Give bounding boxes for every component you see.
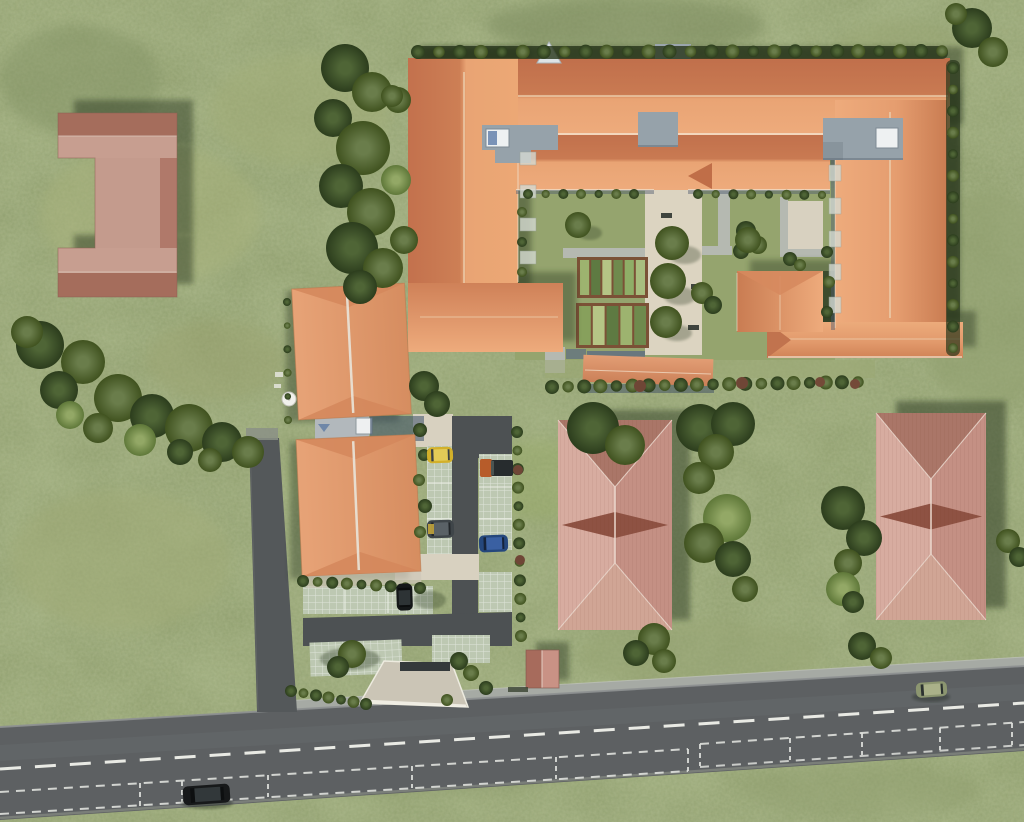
tree: [652, 649, 676, 673]
terrace-furniture: [274, 384, 281, 388]
hedge-villa-west: [283, 345, 291, 353]
planter-row: [636, 260, 645, 295]
hedge-villa-west: [284, 416, 292, 424]
hedge-east: [947, 62, 959, 74]
hedge-apron-west: [310, 689, 322, 701]
hedge-south: [674, 378, 688, 392]
hedge-villa-south: [385, 580, 397, 592]
hedge-east: [947, 299, 959, 311]
tree: [870, 647, 892, 669]
courtyard-shrubs: [542, 190, 550, 198]
courtyard-shrubs: [693, 189, 703, 199]
hedge-north: [663, 45, 677, 59]
hedge-south: [707, 379, 718, 390]
fence: [508, 687, 528, 692]
hedge-south: [577, 379, 591, 393]
tree: [414, 526, 426, 538]
hedge-apron-west: [299, 688, 309, 698]
terrace-furniture: [275, 372, 283, 377]
hedge-north: [725, 44, 739, 58]
truck-cab: [480, 459, 492, 477]
car-on-road-olive: [916, 681, 948, 698]
flowering-shrub: [634, 380, 646, 392]
building-west-spine-dark: [160, 158, 177, 248]
car-hood: [428, 524, 434, 534]
hedge-apron-west: [323, 692, 335, 704]
balcony: [520, 218, 536, 231]
hedge-east: [948, 214, 958, 224]
car-rear-window: [502, 537, 504, 549]
tree: [821, 246, 833, 258]
flowering-shrub: [736, 377, 748, 389]
building-west-roof-light: [58, 136, 177, 158]
hedge-apron-west: [285, 685, 297, 697]
courtyard-tree: [655, 226, 689, 260]
hedge-south: [659, 379, 670, 390]
car-rear-window: [399, 605, 410, 607]
hedge-north: [811, 46, 822, 57]
tree: [517, 237, 527, 247]
flowering-shrub: [850, 379, 860, 389]
tree: [517, 207, 527, 217]
tree: [732, 576, 758, 602]
hedge-villa-west: [284, 322, 291, 329]
car-roof: [485, 537, 503, 550]
hedge-south: [804, 377, 815, 388]
hedge-north: [914, 44, 928, 58]
grass-patch: [145, 320, 285, 400]
hedge-north: [579, 45, 593, 59]
hedge-south: [835, 375, 849, 389]
hedge-villa-south: [370, 579, 382, 591]
hedge-parking-east: [511, 426, 523, 438]
tree: [418, 499, 432, 513]
hedge-north: [851, 44, 865, 58]
shed-roof-dark: [526, 650, 542, 688]
hedge-south: [611, 380, 622, 391]
hedge-north: [411, 45, 425, 59]
courtyard-tree: [565, 212, 591, 238]
hedge-south: [690, 378, 704, 392]
tree: [450, 652, 468, 670]
hedge-east: [948, 343, 958, 353]
tree: [842, 591, 864, 613]
hedge-north: [767, 44, 781, 58]
hedge-parking-east: [513, 537, 525, 549]
zinc-roof: [638, 112, 678, 147]
car-roof: [192, 787, 222, 803]
hedge-villa-south: [326, 577, 338, 589]
car-windshield: [483, 537, 486, 550]
tree: [83, 413, 113, 443]
car-yellow: [427, 447, 454, 464]
hedge-east: [947, 105, 959, 117]
courtyard-shrubs: [746, 189, 756, 199]
paver-stalls: [479, 572, 512, 612]
grass-patch: [740, 765, 980, 815]
hedge-north: [474, 45, 488, 59]
car-windshield: [398, 588, 410, 591]
tree: [945, 3, 967, 25]
planter-row: [602, 260, 611, 295]
hedge-villa-west: [283, 298, 291, 306]
courtyard-tree: [650, 263, 686, 299]
tree: [56, 401, 84, 429]
hedge-north: [433, 46, 444, 57]
tree: [441, 694, 453, 706]
planter-row: [620, 306, 632, 345]
tree: [517, 267, 527, 277]
tree: [381, 165, 411, 195]
hedge-parking-east: [514, 574, 526, 586]
site-plan-aerial-view: Aerial site plan rendering of residentia…: [0, 0, 1024, 822]
skylight: [356, 418, 372, 434]
hedge-north: [600, 45, 614, 59]
car-roof: [432, 522, 449, 536]
hedge-villa-west: [284, 369, 292, 377]
concrete-path: [718, 190, 730, 248]
shed-roof-light: [542, 650, 559, 688]
planter-row: [614, 260, 623, 295]
hedge-north: [516, 45, 530, 59]
courtyard-tree: [735, 227, 761, 253]
hedge-south: [545, 380, 559, 394]
hedge-north: [642, 45, 656, 59]
tree: [715, 541, 751, 577]
courtyard-shrubs: [611, 189, 621, 199]
hedge-north: [830, 44, 844, 58]
hedge-north: [453, 45, 467, 59]
courtyard-tree: [650, 306, 682, 338]
hedge-base: [412, 46, 948, 59]
hedge-east: [947, 170, 959, 182]
planter-row: [593, 306, 605, 345]
parking-aisle: [452, 458, 478, 614]
planter-box: [566, 349, 586, 359]
planter-row: [580, 260, 589, 295]
parking-asphalt: [452, 416, 512, 458]
balcony: [520, 251, 536, 264]
flowering-shrub: [815, 377, 825, 387]
tree: [390, 226, 418, 254]
hedge-villa-south: [341, 578, 353, 590]
tree: [11, 316, 43, 348]
hedge-north: [704, 44, 718, 58]
tree: [623, 640, 649, 666]
hedge-parking-east: [514, 501, 524, 511]
hedge-north: [873, 45, 884, 56]
tree: [479, 681, 493, 695]
tree: [683, 462, 715, 494]
courtyard-shrubs: [728, 189, 738, 199]
bench: [661, 213, 672, 218]
car-windshield: [431, 449, 434, 461]
building-west-roof-dark: [58, 273, 177, 297]
tile-texture: [876, 413, 986, 620]
tree: [605, 425, 645, 465]
hedge-parking-east: [515, 630, 527, 642]
tree: [704, 296, 722, 314]
car-blue: [479, 534, 509, 552]
hedge-south: [562, 381, 573, 392]
hedge-parking-east: [513, 519, 525, 531]
planter-row: [625, 260, 634, 295]
hedge-villa-south: [414, 582, 426, 594]
hedge-east: [947, 320, 959, 332]
hedge-base: [946, 60, 960, 356]
hedge-villa-west: [285, 393, 292, 400]
courtyard-shrubs: [558, 189, 568, 199]
patio: [787, 201, 823, 252]
hedge-parking-east: [514, 593, 526, 605]
hedge-north: [559, 46, 570, 57]
planter-row: [607, 306, 619, 345]
hedge-south: [756, 378, 767, 389]
courtyard-shrubs: [629, 189, 639, 199]
courtyard-shrubs: [523, 189, 533, 199]
hedge-apron-west: [360, 698, 372, 710]
courtyard-shrubs: [799, 190, 809, 200]
car-rear-window: [448, 449, 450, 460]
car-black-parked: [396, 583, 413, 611]
flowering-shrub: [513, 465, 523, 475]
tree: [124, 424, 156, 456]
hedge-apron-west: [348, 696, 360, 708]
tree: [167, 439, 193, 465]
balcony: [829, 198, 841, 214]
skylight-frame: [488, 131, 497, 145]
tree: [413, 474, 425, 486]
hedge-north: [788, 44, 802, 58]
site-plan-canvas: [0, 0, 1024, 822]
skylight: [876, 128, 898, 148]
building-west-roof-light: [58, 248, 177, 273]
hedge-north: [936, 45, 947, 56]
hedge-east: [947, 191, 959, 203]
hedge-parking-east: [512, 482, 524, 494]
courtyard-shrubs: [818, 191, 826, 199]
car-roof: [432, 449, 449, 461]
hedge-parking-east: [516, 613, 526, 623]
hedge-east: [947, 234, 959, 246]
hedge-north: [685, 46, 696, 57]
planter-row: [591, 260, 600, 295]
hedge-apron-west: [336, 695, 346, 705]
hedge-east: [947, 127, 959, 139]
courtyard-shrubs: [576, 189, 586, 199]
truck-cargo: [491, 460, 513, 476]
tree: [413, 423, 427, 437]
hedge-north: [748, 46, 759, 57]
paver-stalls: [303, 586, 433, 614]
concrete-path: [563, 248, 647, 258]
hedge-north: [496, 46, 507, 57]
tree: [463, 665, 479, 681]
tree: [381, 85, 403, 107]
courtyard-shrubs: [595, 190, 603, 198]
planter-row: [634, 306, 646, 345]
courtyard-shrubs: [782, 190, 792, 200]
hedge-south: [593, 379, 607, 393]
balcony: [520, 152, 536, 165]
tree: [794, 259, 806, 271]
hedge-north: [622, 46, 633, 57]
hedge-villa-south: [297, 575, 309, 587]
building-west-roof-dark: [58, 113, 177, 136]
flowering-shrub: [515, 555, 525, 565]
hedge-villa-south: [313, 577, 323, 587]
balcony: [829, 165, 841, 181]
car-roof: [398, 589, 410, 606]
courtyard-shrubs: [712, 190, 720, 198]
zinc-step: [823, 142, 843, 160]
entrance-grate: [400, 662, 450, 671]
tree: [823, 276, 835, 288]
hedge-east: [948, 85, 958, 95]
balcony: [829, 231, 841, 247]
hedge-villa-south: [357, 580, 367, 590]
planter-row: [579, 306, 591, 345]
hedge-south: [722, 377, 736, 391]
car-on-road-dark: [182, 783, 230, 805]
tree: [327, 656, 349, 678]
hedge-east: [948, 278, 958, 288]
hedge-south: [770, 376, 784, 390]
concrete-path: [780, 197, 788, 255]
tree: [978, 37, 1008, 67]
truck-window: [491, 461, 494, 475]
car-roof: [922, 683, 942, 695]
hedge-parking-east: [512, 446, 522, 456]
tree: [198, 448, 222, 472]
hedge-east: [948, 149, 958, 159]
tree: [343, 270, 377, 304]
hedge-south: [787, 376, 801, 390]
grass-patch: [10, 490, 230, 630]
hedge-east: [947, 256, 959, 268]
tree: [821, 306, 833, 318]
hedge-north: [893, 44, 907, 58]
tree: [232, 436, 264, 468]
hedge-north: [537, 45, 551, 59]
tree: [424, 391, 450, 417]
courtyard-shrubs: [765, 190, 773, 198]
